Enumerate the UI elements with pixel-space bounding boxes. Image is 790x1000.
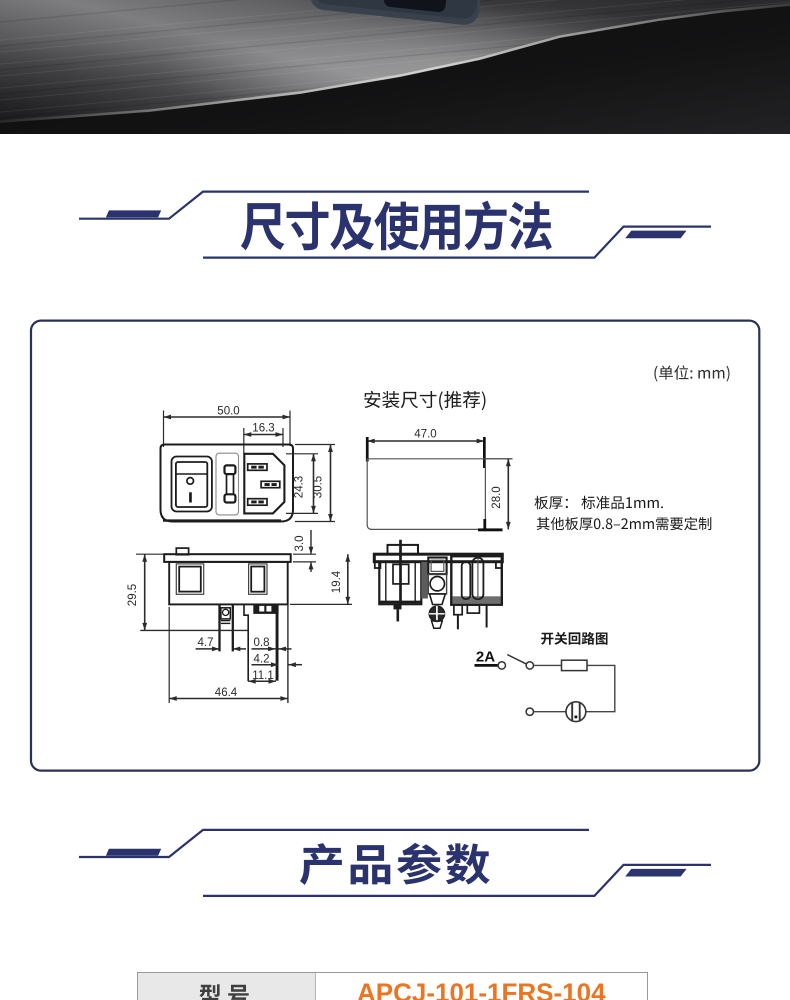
svg-text:16.3: 16.3 xyxy=(252,423,274,435)
svg-text:0.8: 0.8 xyxy=(254,637,270,649)
svg-text:APCJ-101-1FRS-104: APCJ-101-1FRS-104 xyxy=(357,978,606,1000)
svg-text:50.0: 50.0 xyxy=(217,406,239,418)
svg-text:24.3: 24.3 xyxy=(294,476,306,498)
svg-text:28.0: 28.0 xyxy=(491,486,503,508)
svg-text:47.0: 47.0 xyxy=(414,429,436,441)
svg-text:29.5: 29.5 xyxy=(127,584,139,606)
svg-text:30.5: 30.5 xyxy=(313,476,325,498)
svg-text:4.7: 4.7 xyxy=(198,637,214,649)
svg-text:19.4: 19.4 xyxy=(331,570,343,593)
svg-text:46.4: 46.4 xyxy=(215,687,238,699)
svg-text:3.0: 3.0 xyxy=(294,536,306,552)
svg-text:4.2: 4.2 xyxy=(254,653,270,665)
svg-text:2A: 2A xyxy=(476,649,495,666)
